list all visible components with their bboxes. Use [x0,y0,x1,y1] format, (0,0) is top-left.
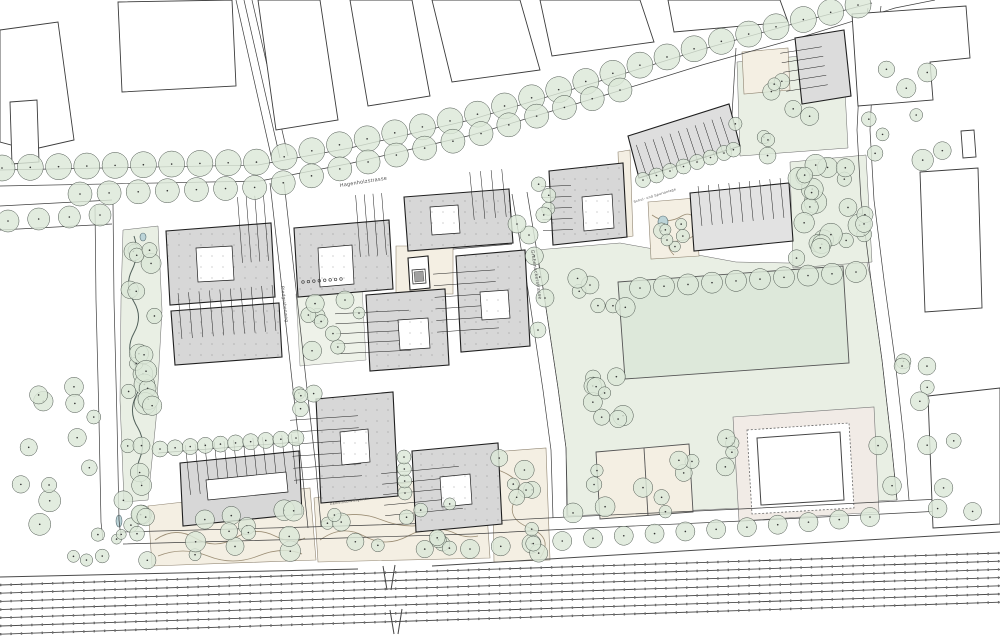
tree-center-dot [775,26,777,28]
tree-center-dot [250,441,252,443]
tree-center-dot [123,500,125,502]
tree-center-dot [623,535,625,537]
tree-center-dot [612,305,614,307]
tree-center-dot [195,541,197,543]
tree-center-dot [536,115,538,117]
tree-center-dot [656,175,658,177]
tree-center-dot [174,447,176,449]
tree-center-dot [538,183,540,185]
tree-center-dot [572,512,574,514]
tree-center-dot [235,442,237,444]
tree-center-dot [288,536,290,538]
tree-center-dot [926,72,928,74]
rail-crossing-stub [383,566,387,590]
tree-center-dot [332,333,334,335]
tree-center-dot [339,168,341,170]
tree-center-dot [595,386,597,388]
tree-center-dot [220,443,222,445]
tree-center-dot [771,91,773,93]
tree-center-dot [625,307,627,309]
tree-center-dot [601,416,603,418]
building-footprint [795,30,851,104]
context-building [961,130,976,158]
tree-center-dot [809,115,811,117]
building-column-grid [171,303,282,365]
building-column-grid [549,163,627,245]
tree-center-dot [114,165,116,167]
tree-center-dot [340,521,342,523]
tree-center-dot [616,376,618,378]
tree-center-dot [815,164,817,166]
road-edge [95,206,103,540]
tree-center-dot [773,83,775,85]
tree-center-dot [151,405,153,407]
tree-center-dot [844,178,846,180]
tree-center-dot [597,305,599,307]
tree-center-dot [86,165,88,167]
context-building [118,0,236,92]
tree-center-dot [596,470,598,472]
tree-center-dot [136,254,138,256]
tree-center-dot [731,451,733,453]
building-footprint [690,183,793,251]
tree-center-dot [86,559,88,561]
tree-center-dot [406,516,408,518]
tree-center-dot [827,167,829,169]
context-building [350,0,430,106]
building-column-grid [166,223,275,305]
tree-center-dot [767,155,769,157]
tree-center-dot [73,556,75,558]
tree-center-dot [532,543,534,545]
site-plan-svg: HagenholzstrasseGrubenackerstrasseRiedgr… [0,0,1000,642]
tree-center-dot [339,144,341,146]
tree-center-dot [146,559,148,561]
tree-center-dot [891,485,893,487]
tree-center-dot [710,157,712,159]
tree-center-dot [683,166,685,168]
context-building [920,168,982,312]
tree-center-dot [877,445,879,447]
tree-center-dot [436,537,438,539]
tree-center-dot [128,391,130,393]
tree-center-dot [746,526,748,528]
tree-center-dot [953,440,955,442]
tree-center-dot [639,287,641,289]
tree-center-dot [97,534,99,536]
tree-center-dot [189,446,191,448]
tree-center-dot [639,64,641,66]
tree-center-dot [73,386,75,388]
tree-center-dot [58,166,60,168]
tree-center-dot [167,190,169,192]
tree-center-dot [663,285,665,287]
tree-center-dot [141,445,143,447]
tree-center-dot [593,484,595,486]
tree-center-dot [516,223,518,225]
tree-center-dot [803,222,805,224]
tree-center-dot [1,167,3,169]
tree-center-dot [498,457,500,459]
tree-center-dot [355,541,357,543]
tree-center-dot [919,400,921,402]
tree-center-dot [874,153,876,155]
rail-crossing-stub [391,565,395,590]
tree-center-dot [804,174,806,176]
tree-center-dot [293,510,295,512]
tree-center-dot [516,496,518,498]
street-label-2: Riedgrabenweg [280,286,289,323]
tree-center-dot [857,4,859,6]
site-plan: HagenholzstrasseGrubenackerstrasseRiedgr… [0,0,1000,642]
tree-center-dot [404,468,406,470]
building-column-grid [294,220,393,297]
tree-center-dot [592,538,594,540]
tree-center-dot [234,546,236,548]
tree-center-dot [915,114,917,116]
tree-center-dot [669,170,671,172]
tree-center-dot [358,312,360,314]
tree-center-dot [108,192,110,194]
tree-center-dot [424,147,426,149]
tree-center-dot [682,235,684,237]
tree-center-dot [726,437,728,439]
tree-center-dot [404,480,406,482]
building-column-grid [456,250,530,352]
tree-center-dot [665,511,667,513]
tree-center-dot [683,472,685,474]
tree-center-dot [311,175,313,177]
tree-center-dot [585,81,587,83]
tree-center-dot [508,124,510,126]
tree-center-dot [295,437,297,439]
tree-center-dot [282,182,284,184]
tree-center-dot [145,370,147,372]
tree-center-dot [604,506,606,508]
tree-center-dot [538,552,540,554]
tree-center-dot [711,282,713,284]
tree-center-dot [39,524,41,526]
tree-center-dot [171,163,173,165]
building-column-grid [412,443,502,532]
tree-center-dot [767,139,769,141]
tree-center-dot [901,365,903,367]
tree-center-dot [592,401,594,403]
tree-center-dot [845,167,847,169]
tree-center-dot [937,508,939,510]
tree-center-dot [863,223,865,225]
tree-center-dot [642,487,644,489]
tree-center-dot [666,239,668,241]
tree-center-dot [449,503,451,505]
tree-center-dot [531,528,533,530]
tree-center-dot [811,192,813,194]
tree-center-dot [196,189,198,191]
tree-center-dot [715,529,717,531]
tree-center-dot [721,41,723,43]
tree-center-dot [943,487,945,489]
tree-center-dot [283,156,285,158]
tree-center-dot [693,48,695,50]
tree-center-dot [548,194,550,196]
tree-center-dot [619,89,621,91]
tree-center-dot [561,540,563,542]
tree-center-dot [524,469,526,471]
tree-center-dot [830,11,832,13]
tree-center-dot [334,514,336,516]
tree-center-dot [733,149,735,151]
tree-center-dot [748,33,750,35]
building-core [414,271,424,282]
tree-center-dot [696,161,698,163]
tree-center-dot [99,214,101,216]
tree-center-dot [74,403,76,405]
tree-center-dot [377,545,379,547]
tree-center-dot [666,56,668,58]
tree-center-dot [344,299,346,301]
tree-center-dot [972,511,974,513]
building-column-grid [404,189,513,251]
context-building [258,0,338,130]
tree-center-dot [642,179,644,181]
tree-center-dot [248,532,250,534]
tree-center-dot [544,297,546,299]
tree-center-dot [674,246,676,248]
pond [140,233,146,241]
tree-center-dot [289,550,291,552]
tree-center-dot [665,229,667,231]
tree-center-dot [512,483,514,485]
tree-center-dot [449,120,451,122]
tree-center-dot [366,138,368,140]
tree-center-dot [143,164,145,166]
context-building [540,0,654,56]
tree-center-dot [7,220,9,222]
tree-center-dot [589,284,591,286]
tree-center-dot [205,445,207,447]
building-column-grid [366,289,449,371]
tree-center-dot [194,554,196,556]
tree-center-dot [76,437,78,439]
tree-center-dot [480,133,482,135]
tree-center-dot [137,191,139,193]
tree-center-dot [135,290,137,292]
tree-center-dot [314,303,316,305]
tree-center-dot [886,68,888,70]
tree-center-dot [685,531,687,533]
tree-center-dot [905,87,907,89]
tree-center-dot [591,98,593,100]
tree-center-dot [49,500,51,502]
tree-center-dot [796,257,798,259]
tree-center-dot [678,459,680,461]
tree-center-dot [280,438,282,440]
tree-center-dot [725,466,727,468]
tree-center-dot [367,161,369,163]
tree-center-dot [29,167,31,169]
tree-center-dot [143,354,145,356]
tree-center-dot [227,162,229,164]
tree-center-dot [809,206,811,208]
tree-center-dot [820,247,822,249]
tree-center-dot [150,263,152,265]
tree-center-dot [311,350,313,352]
tree-center-dot [926,365,928,367]
tree-center-dot [882,134,884,136]
tree-center-dot [869,516,871,518]
tree-center-dot [504,105,506,107]
tree-center-dot [723,152,725,154]
tree-center-dot [759,278,761,280]
tree-center-dot [308,314,310,316]
tree-center-dot [564,107,566,109]
tree-center-dot [93,416,95,418]
tree-center-dot [116,538,118,540]
tree-center-dot [228,530,230,532]
context-building [432,0,540,82]
tree-center-dot [38,218,40,220]
platform-edge [0,569,358,577]
tree-center-dot [781,80,783,82]
tree-center-dot [452,140,454,142]
tree-center-dot [300,408,302,410]
tree-center-dot [855,271,857,273]
tree-center-dot [204,519,206,521]
tree-center-dot [422,126,424,128]
road-edge [113,204,121,538]
tree-center-dot [803,19,805,21]
tree-center-dot [531,97,533,99]
tree-center-dot [313,393,315,395]
tree-center-dot [256,161,258,163]
tree-center-dot [578,290,580,292]
tree-center-dot [926,444,928,446]
tree-center-dot [831,273,833,275]
tree-center-dot [783,277,785,279]
tree-center-dot [922,159,924,161]
tree-center-dot [20,484,22,486]
tree-center-dot [687,284,689,286]
tree-center-dot [101,555,103,557]
tree-center-dot [808,521,810,523]
tree-center-dot [199,163,201,165]
tree-center-dot [847,207,849,209]
tree-center-dot [311,150,313,152]
tree-center-dot [868,118,870,120]
tree-center-dot [543,214,545,216]
tree-center-dot [537,329,539,331]
tree-center-dot [661,496,663,498]
tree-center-dot [127,445,129,447]
tree-center-dot [48,484,50,486]
tree-center-dot [424,548,426,550]
tree-center-dot [558,89,560,91]
tree-center-dot [777,524,779,526]
tree-center-dot [154,315,156,317]
tree-center-dot [612,72,614,74]
tree-center-dot [449,547,451,549]
tree-center-dot [141,485,143,487]
tree-center-dot [792,108,794,110]
tree-center-dot [577,278,579,280]
tree-center-dot [300,395,302,397]
tree-center-dot [159,448,161,450]
tree-center-dot [327,522,329,524]
tree-center-dot [838,519,840,521]
tree-center-dot [139,472,141,474]
tree-center-dot [926,386,928,388]
tree-center-dot [130,524,132,526]
tree-center-dot [735,280,737,282]
tree-center-dot [528,234,530,236]
tree-center-dot [254,187,256,189]
tree-center-dot [337,346,339,348]
tree-center-dot [691,461,693,463]
tree-center-dot [469,548,471,550]
tree-center-dot [845,240,847,242]
building-column-grid [316,392,398,503]
tree-center-dot [89,467,91,469]
tree-center-dot [403,456,405,458]
tree-center-dot [230,515,232,517]
tree-center-dot [394,132,396,134]
tree-center-dot [265,440,267,442]
tree-center-dot [680,223,682,225]
tree-center-dot [404,492,406,494]
tree-center-dot [120,534,122,536]
tree-center-dot [617,418,619,420]
tree-center-dot [807,275,809,277]
tree-center-dot [525,489,527,491]
sports-hall-inner [757,432,844,505]
tree [0,210,19,232]
tree-center-dot [500,546,502,548]
tree-center-dot [604,392,606,394]
tree-center-dot [735,123,737,125]
tree-center-dot [225,188,227,190]
tree-center-dot [28,447,30,449]
tree-center-dot [79,193,81,195]
tree-center-dot [942,150,944,152]
tree-center-dot [145,516,147,518]
tree-center-dot [69,216,71,218]
tree-center-dot [320,321,322,323]
tree-center-dot [136,533,138,535]
tree-center-dot [830,234,832,236]
tree-center-dot [38,394,40,396]
tree-center-dot [477,113,479,115]
context-building [10,100,39,164]
tree-center-dot [396,154,398,156]
tree-center-dot [420,509,422,511]
tree-center-dot [149,249,151,251]
tree-center-dot [654,533,656,535]
